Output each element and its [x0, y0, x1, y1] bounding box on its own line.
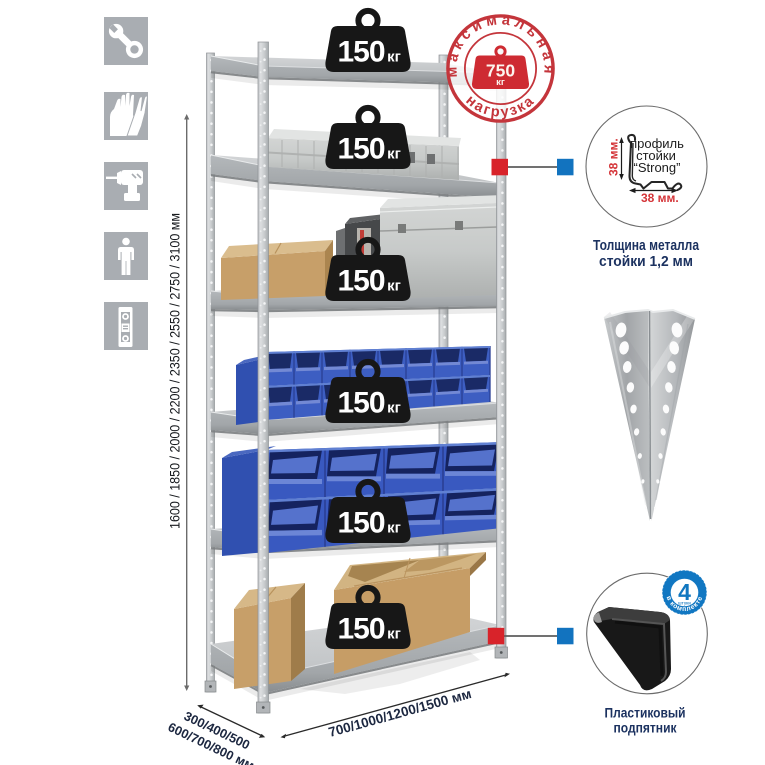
- svg-text:700/1000/1200/1500 мм: 700/1000/1200/1500 мм: [327, 686, 473, 740]
- svg-text:стойки 1,2 мм: стойки 1,2 мм: [599, 253, 693, 270]
- svg-text:штуки: штуки: [678, 600, 691, 605]
- svg-text:150: 150: [337, 36, 384, 69]
- svg-text:1600 / 1850 / 2000 / 2200 / 23: 1600 / 1850 / 2000 / 2200 / 2350 / 2550 …: [168, 213, 183, 529]
- svg-text:кг: кг: [387, 520, 401, 537]
- svg-text:кг: кг: [387, 49, 401, 66]
- svg-text:150: 150: [337, 613, 384, 646]
- svg-text:38 мм.: 38 мм.: [641, 191, 679, 205]
- svg-text:150: 150: [337, 507, 384, 540]
- svg-text:“Strong”: “Strong”: [634, 160, 681, 175]
- svg-text:кг: кг: [496, 77, 505, 88]
- svg-text:кг: кг: [387, 400, 401, 417]
- svg-text:Толщина металла: Толщина металла: [593, 237, 700, 254]
- svg-text:кг: кг: [387, 626, 401, 643]
- svg-text:150: 150: [337, 265, 384, 298]
- svg-text:150: 150: [337, 133, 384, 166]
- svg-text:подпятник: подпятник: [614, 720, 678, 736]
- svg-text:38 мм.: 38 мм.: [607, 138, 621, 176]
- svg-text:кг: кг: [387, 146, 401, 163]
- svg-text:Пластиковый: Пластиковый: [605, 705, 686, 721]
- svg-text:150: 150: [337, 387, 384, 420]
- svg-text:кг: кг: [387, 278, 401, 295]
